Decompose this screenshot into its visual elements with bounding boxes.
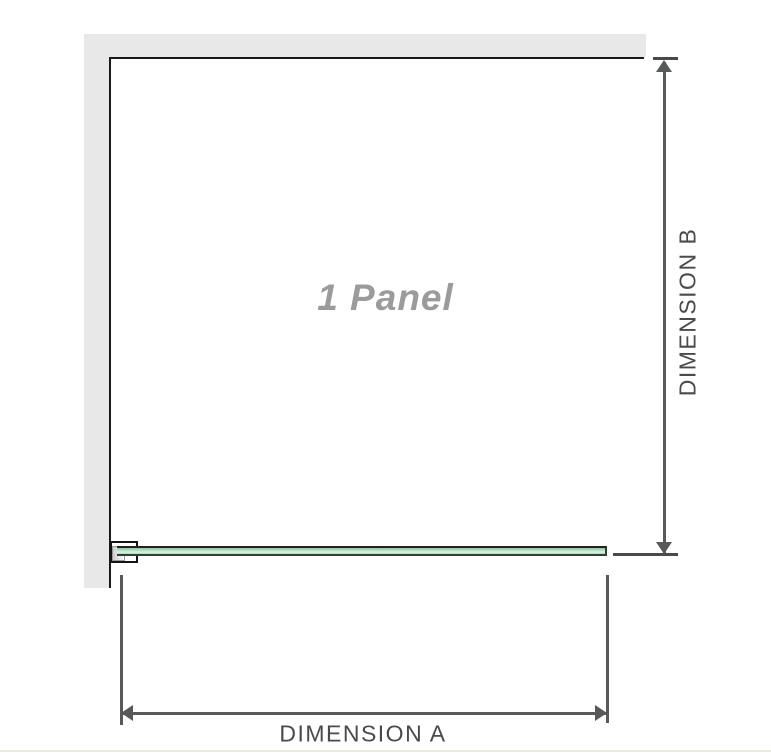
dimension-a-arrow-left-icon	[121, 705, 133, 721]
dimension-a-extension-right	[606, 575, 609, 723]
frame-top-line	[110, 57, 644, 59]
wall-band-top	[84, 34, 646, 57]
dimension-a-line	[121, 712, 607, 715]
dimension-b-arrow-down-icon	[656, 542, 672, 554]
dimension-b-label: DIMENSION B	[675, 228, 702, 397]
dimension-a-label: DIMENSION A	[279, 721, 446, 748]
dimension-b-arrow-up-icon	[656, 60, 672, 72]
dimension-b-line	[663, 62, 666, 553]
panel-count-label: 1 Panel	[118, 276, 653, 320]
panel-dimension-diagram: 1 Panel DIMENSION B DIMENSION A	[0, 0, 771, 755]
dimension-a-arrow-right-icon	[595, 705, 607, 721]
frame-left-line	[109, 57, 111, 588]
dimension-a-extension-left	[120, 575, 123, 725]
glass-panel-bar	[117, 546, 607, 556]
image-bottom-edge-line	[0, 750, 771, 752]
wall-band-left	[84, 34, 110, 588]
